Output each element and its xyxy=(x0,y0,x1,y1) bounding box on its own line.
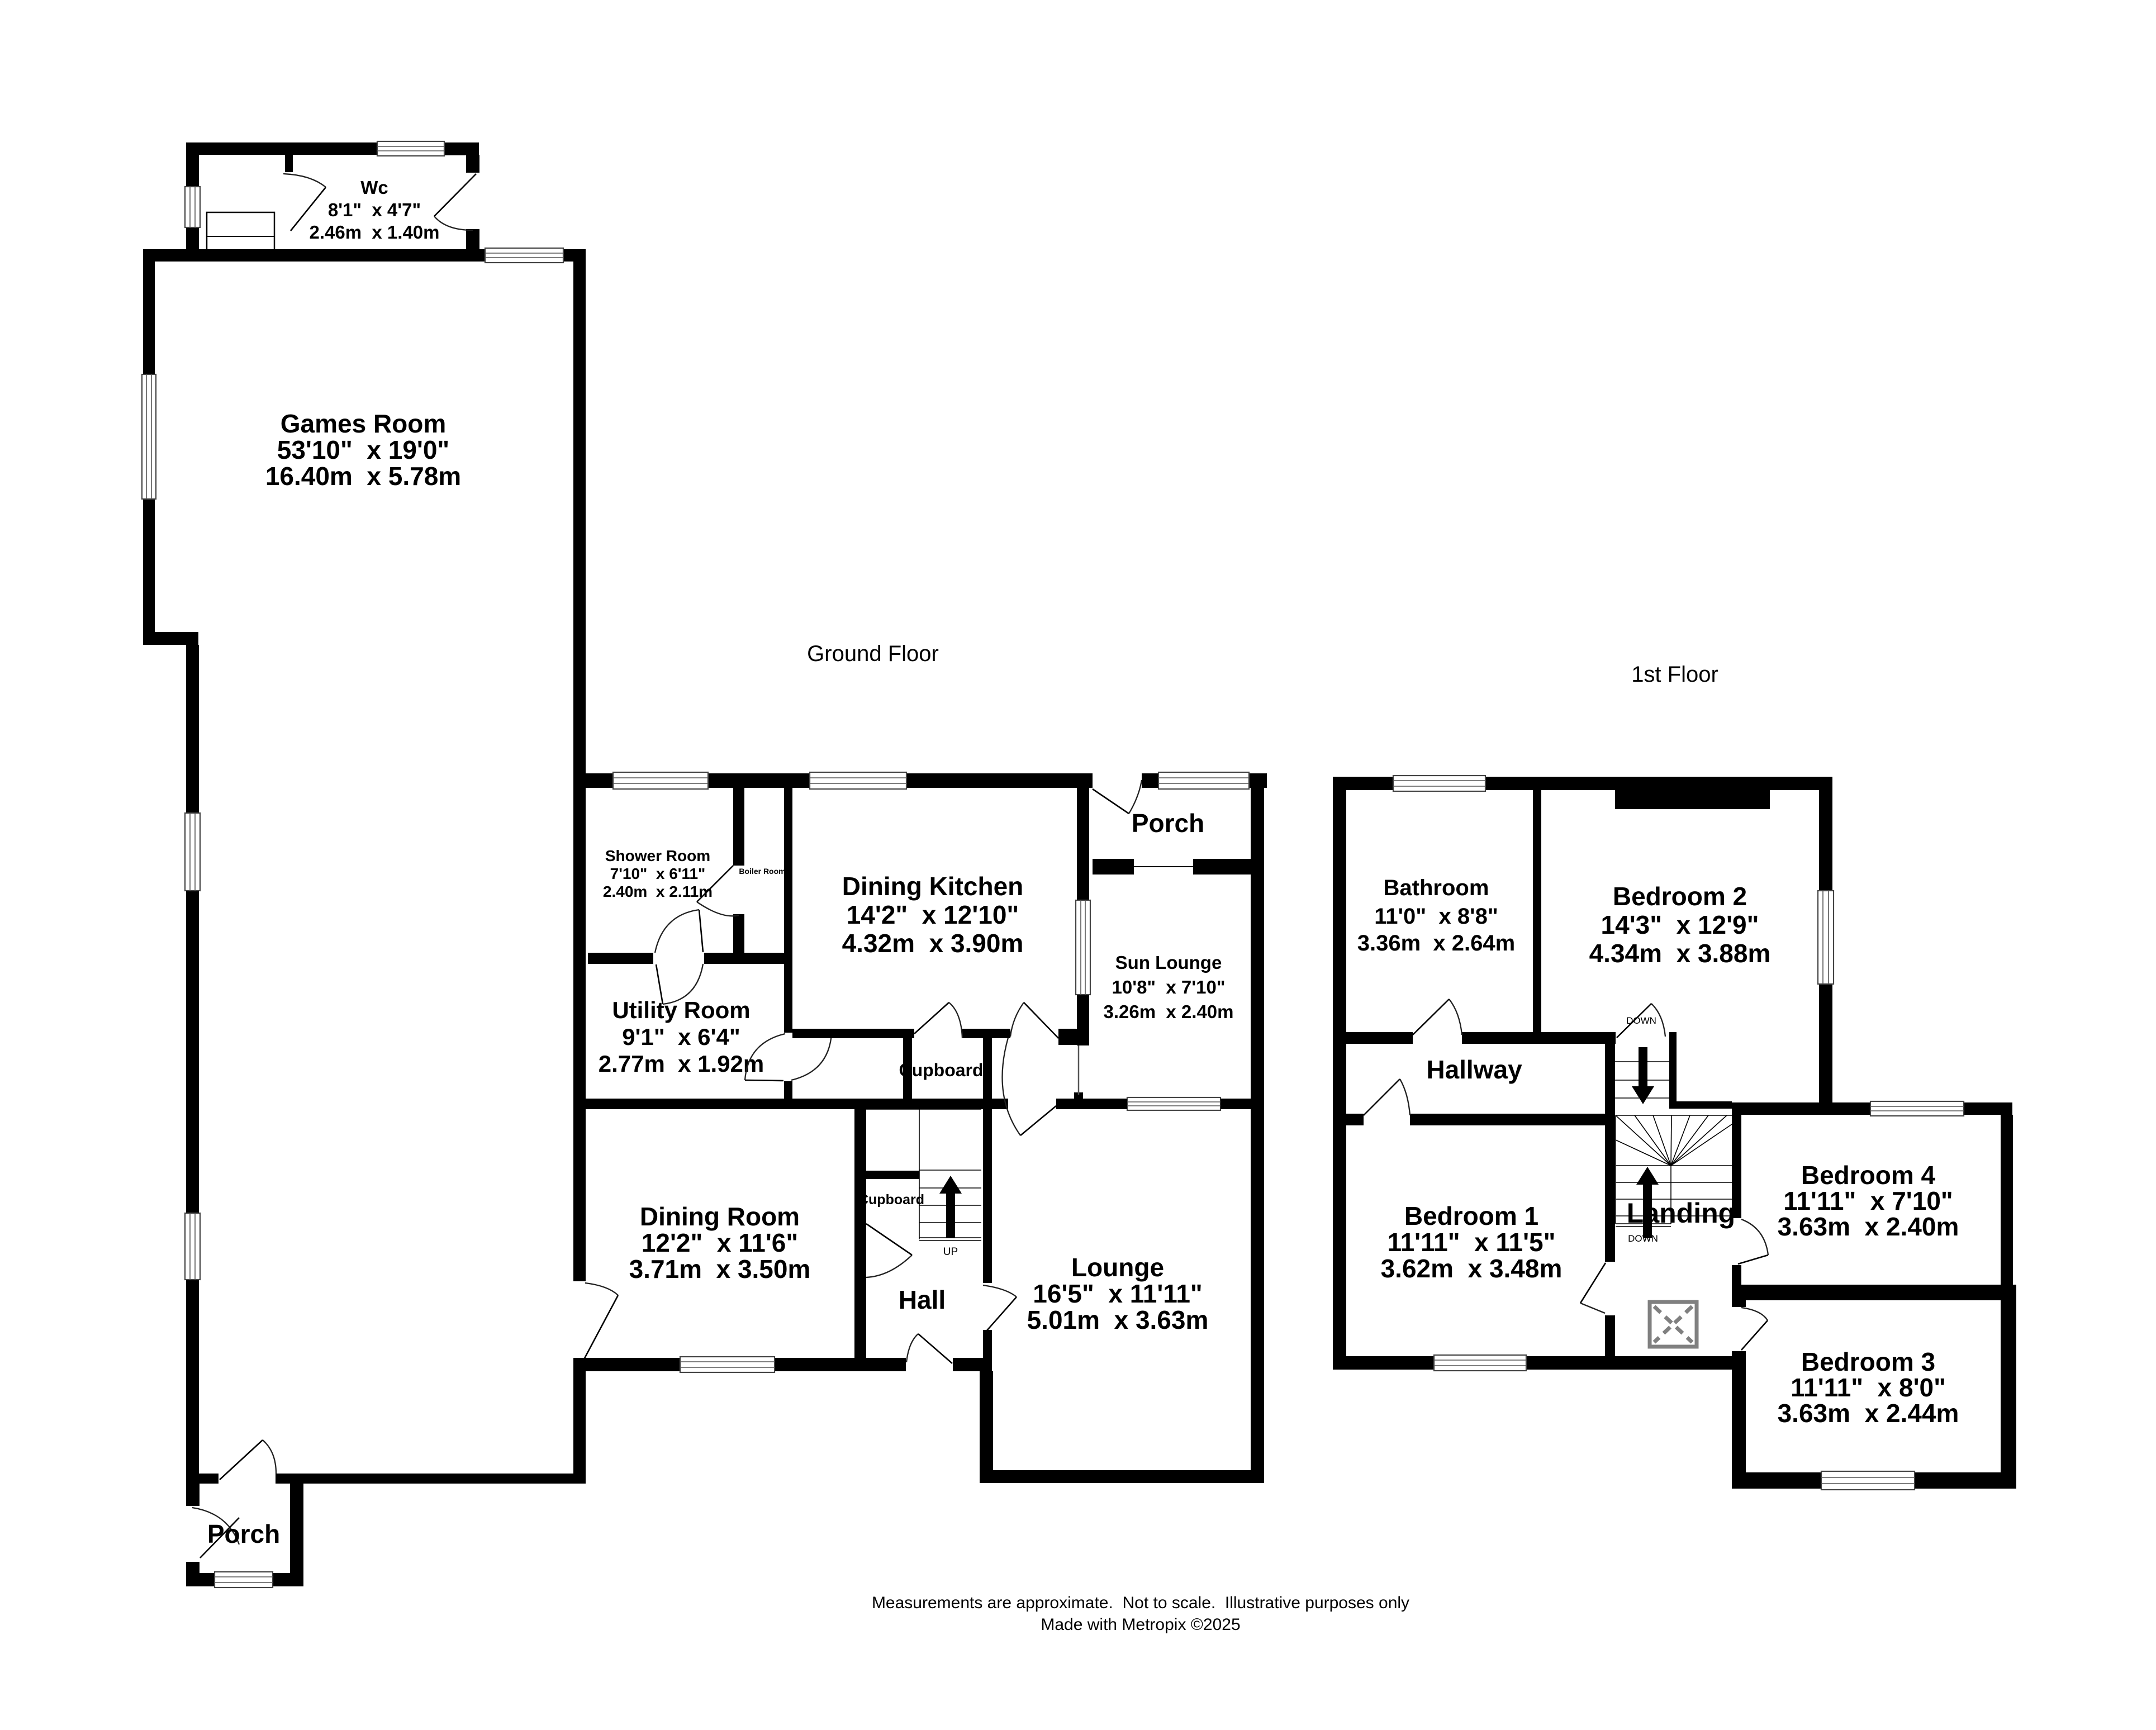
svg-text:Landing: Landing xyxy=(1627,1197,1735,1229)
svg-text:11'0" x 8'8": 11'0" x 8'8" xyxy=(1374,904,1498,929)
svg-text:Utility Room: Utility Room xyxy=(612,997,750,1023)
svg-text:Lounge: Lounge xyxy=(1071,1253,1164,1282)
svg-text:11'11" x 8'0": 11'11" x 8'0" xyxy=(1791,1373,1946,1402)
svg-text:Shower Room: Shower Room xyxy=(605,847,710,864)
svg-text:DOWN: DOWN xyxy=(1626,1015,1656,1026)
svg-text:Hall: Hall xyxy=(899,1285,946,1314)
svg-text:11'11" x 7'10": 11'11" x 7'10" xyxy=(1783,1186,1953,1215)
svg-text:2.46m x 1.40m: 2.46m x 1.40m xyxy=(310,222,440,243)
svg-text:Bedroom 2: Bedroom 2 xyxy=(1613,882,1747,911)
svg-text:2.40m x 2.11m: 2.40m x 2.11m xyxy=(603,883,713,900)
svg-text:Porch: Porch xyxy=(207,1519,280,1548)
svg-text:3.62m x 3.48m: 3.62m x 3.48m xyxy=(1381,1254,1563,1283)
svg-text:Bedroom 1: Bedroom 1 xyxy=(1404,1201,1538,1230)
svg-text:4.34m x 3.88m: 4.34m x 3.88m xyxy=(1589,939,1771,968)
svg-text:Sun Lounge: Sun Lounge xyxy=(1115,952,1222,973)
svg-text:3.71m x 3.50m: 3.71m x 3.50m xyxy=(629,1254,811,1284)
svg-text:Bedroom 4: Bedroom 4 xyxy=(1801,1161,1936,1190)
svg-text:3.36m x 2.64m: 3.36m x 2.64m xyxy=(1357,931,1515,956)
svg-text:Bathroom: Bathroom xyxy=(1384,876,1489,900)
svg-text:11'11" x 11'5": 11'11" x 11'5" xyxy=(1388,1228,1556,1257)
svg-text:Hallway: Hallway xyxy=(1426,1055,1522,1084)
svg-text:Games Room: Games Room xyxy=(281,409,447,438)
svg-text:Measurements are approximate.: Measurements are approximate. Not to sca… xyxy=(872,1594,1409,1612)
svg-text:3.26m x 2.40m: 3.26m x 2.40m xyxy=(1104,1001,1234,1022)
svg-text:3.63m x 2.40m: 3.63m x 2.40m xyxy=(1778,1212,1959,1241)
svg-text:14'2" x 12'10": 14'2" x 12'10" xyxy=(847,900,1019,929)
svg-text:10'8" x 7'10": 10'8" x 7'10" xyxy=(1112,977,1226,997)
svg-text:DOWN: DOWN xyxy=(1628,1233,1658,1244)
svg-text:5.01m x 3.63m: 5.01m x 3.63m xyxy=(1027,1305,1209,1334)
svg-text:7'10" x 6'11": 7'10" x 6'11" xyxy=(610,865,706,882)
svg-text:Boiler Room: Boiler Room xyxy=(739,867,785,876)
svg-text:16'5" x 11'11": 16'5" x 11'11" xyxy=(1033,1279,1202,1308)
svg-text:Dining Room: Dining Room xyxy=(640,1202,800,1231)
svg-text:1st Floor: 1st Floor xyxy=(1631,662,1718,687)
svg-text:UP: UP xyxy=(943,1246,958,1258)
svg-text:53'10" x 19'0": 53'10" x 19'0" xyxy=(277,435,450,464)
svg-text:2.77m x 1.92m: 2.77m x 1.92m xyxy=(599,1051,764,1077)
svg-text:8'1" x 4'7": 8'1" x 4'7" xyxy=(328,199,421,220)
svg-text:Cupboard: Cupboard xyxy=(899,1060,983,1080)
svg-text:14'3" x 12'9": 14'3" x 12'9" xyxy=(1601,910,1759,939)
svg-text:3.63m x 2.44m: 3.63m x 2.44m xyxy=(1778,1399,1959,1428)
svg-text:Ground Floor: Ground Floor xyxy=(807,641,939,666)
svg-text:9'1" x 6'4": 9'1" x 6'4" xyxy=(622,1024,740,1050)
svg-text:Porch: Porch xyxy=(1132,809,1204,838)
svg-text:Dining Kitchen: Dining Kitchen xyxy=(842,872,1024,901)
svg-text:Cupboard: Cupboard xyxy=(858,1192,924,1208)
svg-text:4.32m x 3.90m: 4.32m x 3.90m xyxy=(842,929,1024,958)
svg-text:Wc: Wc xyxy=(360,177,388,198)
svg-text:12'2" x 11'6": 12'2" x 11'6" xyxy=(642,1228,798,1257)
svg-text:16.40m x 5.78m: 16.40m x 5.78m xyxy=(265,462,461,491)
svg-text:Bedroom 3: Bedroom 3 xyxy=(1801,1347,1935,1376)
svg-text:Made with Metropix ©2025: Made with Metropix ©2025 xyxy=(1041,1615,1240,1634)
